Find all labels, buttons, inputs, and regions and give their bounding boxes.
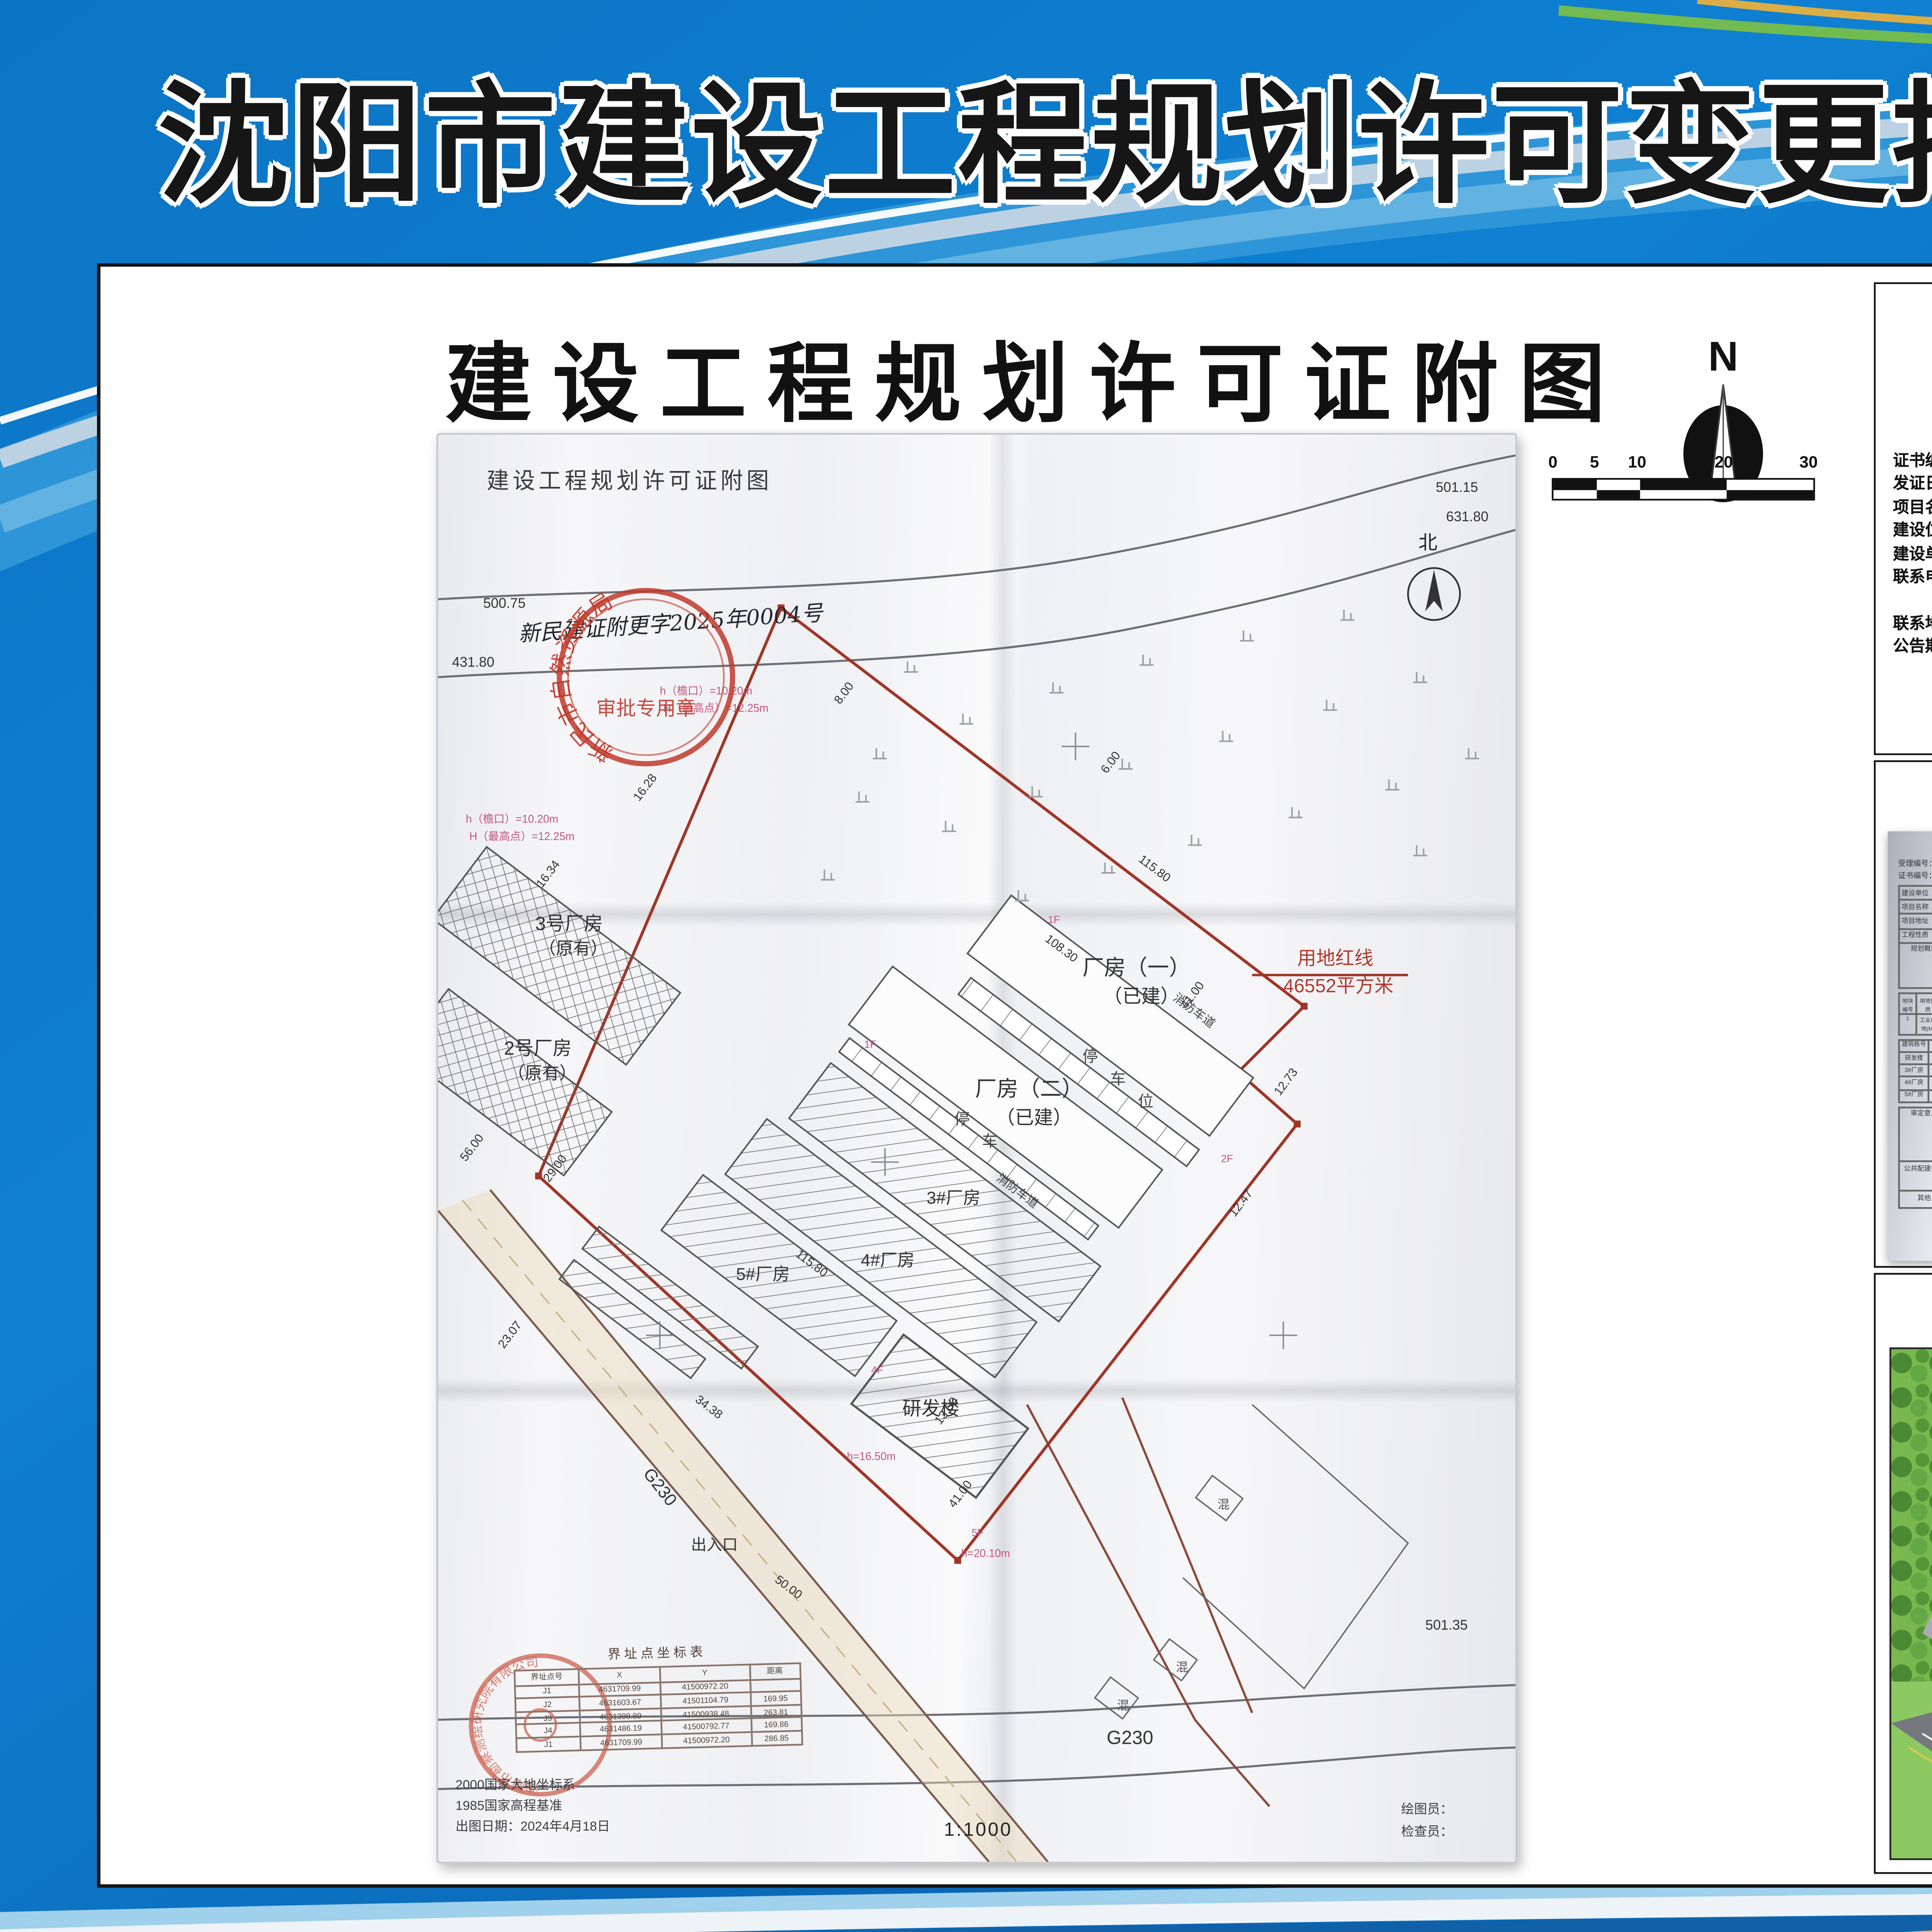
drawing-annotation: 12.73 bbox=[1271, 1066, 1300, 1098]
grass-symbol bbox=[1029, 786, 1043, 797]
drawing-annotation: G230 bbox=[1107, 1727, 1153, 1748]
drawing-annotation: 16.34 bbox=[534, 858, 563, 890]
table-header-cell: 界址点号 bbox=[515, 1669, 579, 1685]
scale-bar-graphic bbox=[1552, 478, 1815, 500]
drawing-annotation: 8.00 bbox=[831, 680, 856, 707]
drawing-annotation: 16.28 bbox=[631, 771, 660, 804]
datum-note-2: 1985国家高程基准 bbox=[456, 1796, 562, 1815]
grass-symbol bbox=[1386, 779, 1400, 790]
drawing-annotation: 停 bbox=[1082, 1048, 1098, 1065]
table-header-cell: 距离 bbox=[749, 1663, 801, 1679]
sheet-title: 建设工程规划许可证附图 bbox=[486, 463, 772, 495]
poster-title: 沈阳市建设工程规划许可变更批后公告牌 bbox=[0, 52, 1932, 242]
announcement-title: 公 告 信 息 bbox=[1876, 296, 1932, 343]
drawing-annotation: 厂房（一） bbox=[1082, 955, 1190, 980]
drawing-annotation: 12.47 bbox=[1226, 1187, 1255, 1219]
change-notice-title: 建设工程规划许可证内容变更通知书 bbox=[1876, 772, 1932, 811]
drawing-annotation: 混 bbox=[1176, 1660, 1188, 1674]
drawing-annotation: h=16.50m bbox=[847, 1450, 896, 1462]
table-row: 1工业用地(M)46552/≥1.0//////// bbox=[1899, 1014, 1932, 1035]
change-notice-doc-left: 建设工程规划许可证内容变更通知书 受理编号： 202500766 建筑许可变更 … bbox=[1888, 831, 1932, 1261]
table-row: 3#厂房M工业建筑110.24747.84747.80 bbox=[1899, 1065, 1932, 1077]
announcement-fields: 证书编号：新民建证附更字2025年0004号(建字第2101812024GG00… bbox=[1893, 450, 1932, 659]
table-header-cell: 用地性质 bbox=[1917, 994, 1932, 1014]
grass-symbol bbox=[821, 869, 835, 880]
grass-symbol bbox=[1465, 748, 1479, 759]
drawing-annotation: 3号厂房 bbox=[535, 913, 603, 934]
table-header-cell: 建筑栋号 bbox=[1899, 1040, 1929, 1052]
drawing-annotation: （原有） bbox=[507, 1063, 577, 1083]
drawing-annotation: h（檐口）=10.20m bbox=[466, 813, 558, 825]
drawing-annotation: 厂房（二） bbox=[975, 1077, 1083, 1101]
drawing-annotation: H（最高点）=12.25m bbox=[469, 830, 575, 842]
aerial-box: 变更后鸟瞰图 bbox=[1874, 1273, 1932, 1874]
approval-stamp: 新民市自然资源局 审批专用章 bbox=[549, 580, 743, 774]
drawing-annotation: 23.07 bbox=[495, 1318, 524, 1351]
drawing-annotation: （原有） bbox=[539, 939, 608, 958]
grass-symbol bbox=[1119, 759, 1133, 769]
drawing-annotation: 501.35 bbox=[1425, 1617, 1468, 1633]
checker-label: 检查员： bbox=[1401, 1822, 1453, 1841]
drawing-annotation: 用地红线 bbox=[1297, 948, 1373, 969]
grass-symbol bbox=[1413, 672, 1427, 682]
drawing-annotation: h=20.10m bbox=[961, 1547, 1010, 1559]
aerial-title: 变更后鸟瞰图 bbox=[1876, 1287, 1932, 1328]
aerial-rendering bbox=[1889, 1347, 1932, 1860]
grass-symbol bbox=[1240, 630, 1254, 641]
plan-north-icon bbox=[1408, 568, 1460, 620]
drawing-annotation: 混 bbox=[1218, 1498, 1230, 1511]
announcement-subtitle-2: 沈阳弘森机械加工项目二期工程规划许可内容变更批后公告 bbox=[1876, 389, 1932, 422]
table-header-cell: X bbox=[578, 1667, 660, 1684]
drawing-annotation: （已建） bbox=[996, 1107, 1072, 1128]
drawing-annotation: 车 bbox=[982, 1132, 997, 1150]
change-notice-box: 建设工程规划许可证内容变更通知书 建设工程规划许可证内容变更通知书 受理编号： … bbox=[1874, 760, 1932, 1268]
grass-symbol bbox=[1219, 731, 1233, 741]
drawing-annotation: 混 bbox=[1117, 1699, 1129, 1712]
grass-symbol bbox=[1102, 862, 1116, 873]
drawing-annotation: 500.75 bbox=[483, 595, 526, 611]
drawing-annotation: 631.80 bbox=[1446, 509, 1489, 524]
grass-symbol bbox=[1049, 682, 1063, 693]
drawing-annotation: 34.38 bbox=[693, 1393, 725, 1422]
grass-symbol bbox=[1139, 655, 1153, 665]
table-row: 研发楼M工业建筑420.13409.873409.87 bbox=[1899, 1052, 1932, 1065]
svg-text:审批专用章: 审批专用章 bbox=[596, 697, 696, 719]
drawing-annotation: 3#厂房 bbox=[927, 1188, 980, 1207]
grass-symbol bbox=[1289, 807, 1303, 818]
drawing-annotation: 1F bbox=[1048, 914, 1060, 925]
grass-symbol bbox=[873, 748, 887, 759]
drawing-annotation: 2F bbox=[1221, 1153, 1233, 1164]
announcement-box: 公 告 信 息 沈阳弘森机械加工制造有限公司投资建设的 沈阳弘森机械加工项目二期… bbox=[1874, 282, 1932, 755]
drawing-annotation: 1F bbox=[864, 1039, 876, 1050]
grass-symbol bbox=[1413, 845, 1427, 855]
grass-symbol bbox=[1323, 700, 1337, 710]
grass-symbol bbox=[942, 821, 956, 832]
poster: 沈阳市建设工程规划许可变更批后公告牌 建设工程规划许可证附图 N 0 5 10 … bbox=[0, 0, 1932, 1932]
plan-attachment-title: 建设工程规划许可证附图 bbox=[291, 315, 1781, 440]
main-panel: 建设工程规划许可证附图 N 0 5 10 20 30 bbox=[97, 263, 1932, 1888]
grass-symbol bbox=[1188, 835, 1202, 845]
drawing-annotation: 4F bbox=[871, 1364, 883, 1376]
drawing-annotation: 车 bbox=[1110, 1070, 1126, 1088]
drawing-annotation: 4#厂房 bbox=[861, 1250, 915, 1270]
drawing-annotation: 5F bbox=[971, 1527, 983, 1539]
table-header-cell: 地块编号 bbox=[1899, 994, 1917, 1014]
drawing-annotation: 停 bbox=[954, 1110, 970, 1128]
plot-date-note: 出图日期：2024年4月18日 bbox=[456, 1817, 610, 1836]
grass-symbol bbox=[855, 791, 869, 802]
grass-symbol bbox=[959, 714, 973, 724]
table-row: 4#厂房M工业建筑110.24747.84747.80 bbox=[1899, 1077, 1932, 1090]
table-row: 5#厂房M工业建筑110.216241624.00 bbox=[1899, 1090, 1932, 1102]
grass-symbol bbox=[904, 662, 918, 672]
drawing-annotation: 115.80 bbox=[1136, 852, 1173, 884]
plan-scale-text: 1:1000 bbox=[944, 1820, 1013, 1841]
drawing-annotation: 北 bbox=[1418, 532, 1437, 553]
table-header-cell: Y bbox=[660, 1665, 750, 1682]
drawing-annotation: 431.80 bbox=[452, 655, 495, 670]
grass-symbol bbox=[1340, 610, 1354, 620]
scale-bar: 0 5 10 20 30 bbox=[1552, 454, 1829, 512]
drafter-label: 绘图员： bbox=[1401, 1799, 1453, 1818]
boundary-coordinate-table: 界址点坐标表 界址点号XY距离 J14631709.9941500972.20J… bbox=[513, 1640, 803, 1752]
table-header-cell: 建筑用途 bbox=[1929, 1040, 1932, 1052]
announcement-subtitle-1: 沈阳弘森机械加工制造有限公司投资建设的 bbox=[1876, 352, 1932, 384]
drawing-annotation: 2号厂房 bbox=[504, 1038, 571, 1059]
datum-note-1: 2000国家大地坐标系 bbox=[456, 1775, 575, 1794]
svg-text:N: N bbox=[1708, 333, 1738, 379]
drawing-annotation: 6.00 bbox=[1098, 749, 1123, 776]
drawing-annotation: 5#厂房 bbox=[736, 1264, 790, 1284]
site-plan-scan: 500.75431.80501.15631.80501.35北厂房（一）（已建）… bbox=[436, 433, 1517, 1864]
drawing-annotation: 位 bbox=[1138, 1092, 1153, 1110]
drawing-annotation: 46552平方米 bbox=[1283, 975, 1393, 997]
drawing-annotation: （已建） bbox=[1103, 986, 1179, 1007]
drawing-annotation: 出入口 bbox=[691, 1536, 738, 1553]
drawing-annotation: 56.00 bbox=[457, 1131, 486, 1164]
drawing-annotation: 501.15 bbox=[1436, 480, 1478, 495]
